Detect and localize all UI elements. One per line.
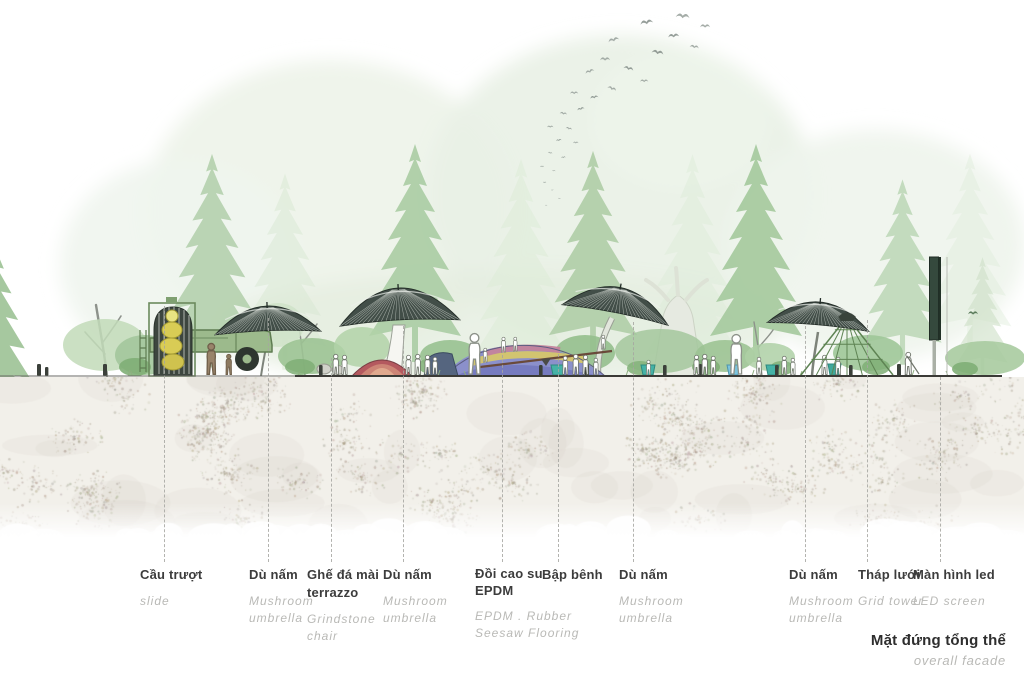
label-slide: Cầu trượt slide xyxy=(140,566,226,610)
label-vi: Dù nấm xyxy=(383,567,432,582)
label-grindstone-chair: Ghế đá mài terrazzo Grindstone chair xyxy=(307,566,383,645)
label-led-screen: Màn hình led LED screen xyxy=(913,566,1008,610)
label-seesaw: Bập bênh xyxy=(542,566,612,584)
label-en: Mushroom umbrella xyxy=(789,593,863,627)
leader-line xyxy=(268,318,269,562)
label-en: Mushroom umbrella xyxy=(383,593,457,627)
label-vi: Tháp lưới xyxy=(858,567,920,582)
leader-line xyxy=(558,354,559,562)
drawing-title-vi: Mặt đứng tổng thể xyxy=(871,632,1006,649)
leader-line xyxy=(867,320,868,562)
label-mushroom-umbrella-3: Dù nấm Mushroom umbrella xyxy=(619,566,695,627)
label-mushroom-umbrella-2: Dù nấm Mushroom umbrella xyxy=(383,566,457,627)
label-vi: Dù nấm xyxy=(619,567,668,582)
leader-line xyxy=(164,306,165,562)
label-en: Mushroom umbrella xyxy=(619,593,695,627)
label-vi: Bập bênh xyxy=(542,567,603,582)
section-drawing-page: Cầu trượt slide Dù nấm Mushroom umbrella… xyxy=(0,0,1024,678)
label-vi: Màn hình led xyxy=(913,567,995,582)
leader-line xyxy=(940,377,941,562)
leader-line xyxy=(403,326,404,562)
label-en: Grindstone chair xyxy=(307,611,383,645)
drawing-title: Mặt đứng tổng thể overall facade xyxy=(871,632,1006,668)
label-vi: Dù nấm xyxy=(249,567,298,582)
leader-line xyxy=(331,358,332,562)
leader-line xyxy=(502,350,503,562)
label-en: slide xyxy=(140,593,226,610)
drawing-title-en: overall facade xyxy=(871,653,1006,668)
label-vi: Dù nấm xyxy=(789,567,838,582)
label-vi: Ghế đá mài terrazzo xyxy=(307,567,379,600)
label-en: EPDM . Rubber Seesaw Flooring xyxy=(475,608,613,642)
leader-line xyxy=(805,326,806,562)
label-vi: Đồi cao su EPDM xyxy=(475,566,547,599)
ground-texture xyxy=(0,377,1024,537)
label-mushroom-umbrella-4: Dù nấm Mushroom umbrella xyxy=(789,566,863,627)
label-vi: Cầu trượt xyxy=(140,567,202,582)
label-en: LED screen xyxy=(913,593,1008,610)
leader-line xyxy=(633,322,634,562)
